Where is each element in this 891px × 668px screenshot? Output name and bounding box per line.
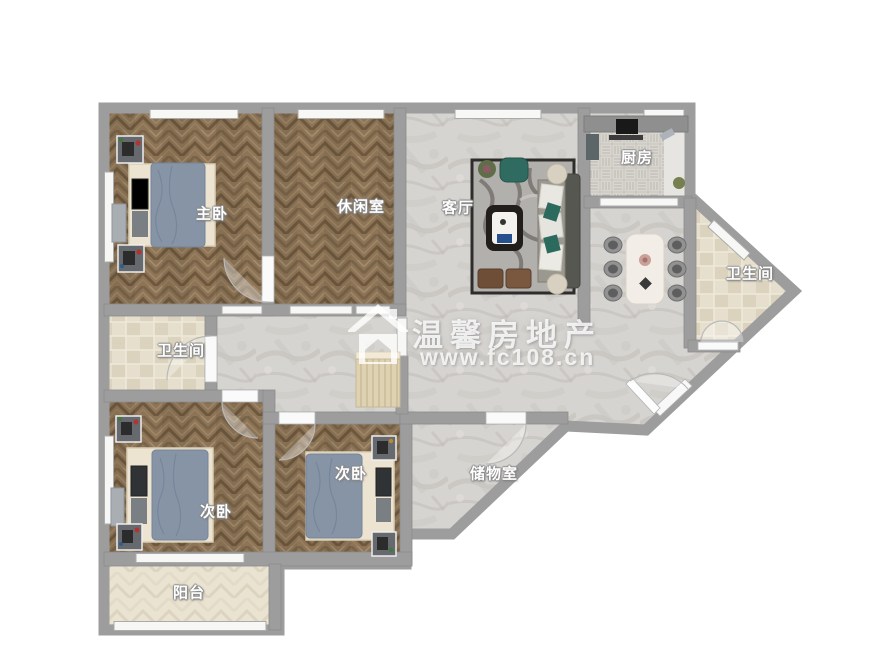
glass-partition-hall-3 — [356, 306, 390, 314]
kitchen-floor-side — [664, 130, 688, 202]
entry-cabinet — [356, 352, 400, 407]
room-label-second-bedroom-middle: 次卧 — [335, 463, 367, 484]
glass-partition-stub — [397, 318, 407, 356]
nightstand — [116, 416, 141, 442]
room-label-storage-room: 储物室 — [470, 463, 518, 484]
window-bedroom-balcony — [136, 554, 244, 563]
kitchen-plant — [673, 177, 685, 189]
glass-partition-hall-1 — [222, 306, 262, 314]
coffee-table — [486, 205, 523, 251]
ottoman — [506, 269, 531, 288]
range-hood — [616, 119, 638, 134]
nightstand — [372, 436, 396, 460]
nightstand — [118, 245, 144, 272]
dining-set — [604, 234, 686, 304]
plant — [478, 160, 496, 178]
room-label-living-room: 客厅 — [442, 197, 474, 218]
floor-plan-drawing — [0, 0, 891, 668]
room-label-balcony: 阳台 — [173, 582, 205, 603]
room-label-bathroom-right: 卫生间 — [726, 263, 774, 284]
armchair — [500, 158, 528, 182]
kitchen-opening — [600, 198, 678, 206]
nightstand — [372, 532, 396, 556]
side-table — [547, 164, 567, 184]
glass-partition-hall-2 — [290, 306, 352, 314]
room-label-kitchen: 厨房 — [621, 147, 653, 168]
fridge — [586, 134, 599, 160]
room-label-master-bedroom: 主卧 — [196, 203, 228, 224]
ottoman — [478, 269, 503, 288]
dining-table — [626, 234, 664, 304]
nightstand — [117, 136, 143, 163]
room-label-leisure-room: 休闲室 — [337, 196, 385, 217]
window-top-leisure — [298, 110, 384, 119]
side-table — [547, 274, 567, 294]
floor-plan: 主卧 休闲室 客厅 厨房 卫生间 卫生间 次卧 次卧 储物室 阳台 温馨房地产 … — [0, 0, 891, 668]
window-top-living — [455, 110, 541, 119]
sofa — [538, 174, 580, 288]
window-top-master — [150, 110, 238, 119]
room-label-second-bedroom-left: 次卧 — [200, 501, 232, 522]
window-balcony — [114, 622, 266, 631]
room-label-bathroom-left: 卫生间 — [157, 340, 205, 361]
nightstand — [117, 524, 142, 550]
